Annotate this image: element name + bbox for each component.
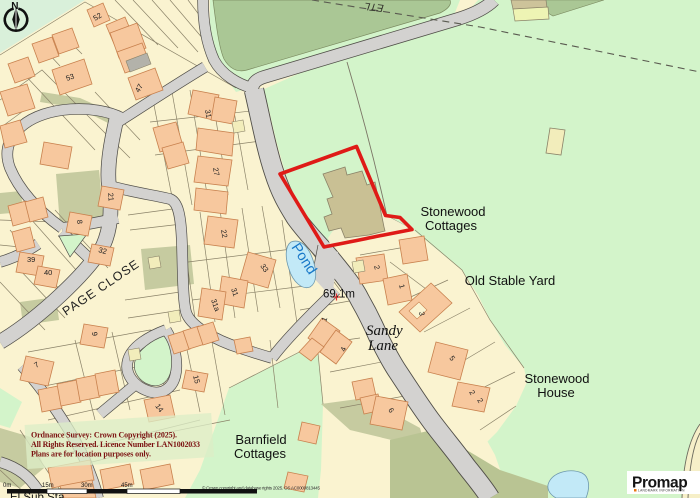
- svg-text:9: 9: [90, 331, 99, 336]
- svg-text:39: 39: [27, 255, 35, 264]
- svg-text:15m: 15m: [42, 483, 54, 489]
- svg-text:Lane: Lane: [367, 338, 398, 354]
- svg-text:22: 22: [219, 229, 229, 239]
- svg-text:27: 27: [211, 167, 221, 177]
- svg-text:N: N: [11, 1, 18, 12]
- svg-text:31: 31: [203, 109, 213, 119]
- svg-text:69.1m: 69.1m: [323, 289, 355, 301]
- svg-text:Plans are for location purpose: Plans are for location purposes only.: [31, 450, 151, 459]
- svg-text:Ordnance Survey: Crown Copyrig: Ordnance Survey: Crown Copyright (2025).: [31, 431, 177, 440]
- svg-text:Barnfield: Barnfield: [235, 432, 286, 447]
- svg-text:Old Stable Yard: Old Stable Yard: [465, 273, 556, 288]
- svg-text:21: 21: [106, 192, 116, 201]
- svg-text:Stonewood: Stonewood: [420, 204, 485, 219]
- svg-text:8: 8: [75, 219, 84, 224]
- svg-text:House: House: [537, 385, 575, 400]
- svg-text:ETL: ETL: [364, 0, 385, 14]
- svg-text:Cottages: Cottages: [234, 446, 287, 461]
- svg-text:Sandy: Sandy: [366, 323, 403, 339]
- svg-text:All Rights Reserved. Licence N: All Rights Reserved. Licence Number LAN1…: [31, 440, 200, 449]
- svg-text:30m: 30m: [81, 483, 93, 489]
- svg-text:Cottages: Cottages: [425, 218, 478, 233]
- svg-text:0m: 0m: [3, 483, 11, 489]
- svg-text:40: 40: [44, 268, 52, 277]
- svg-text:Stonewood: Stonewood: [524, 371, 589, 386]
- svg-text:LANDMARK INFORMATION: LANDMARK INFORMATION: [638, 489, 685, 493]
- svg-text:45m: 45m: [121, 483, 133, 489]
